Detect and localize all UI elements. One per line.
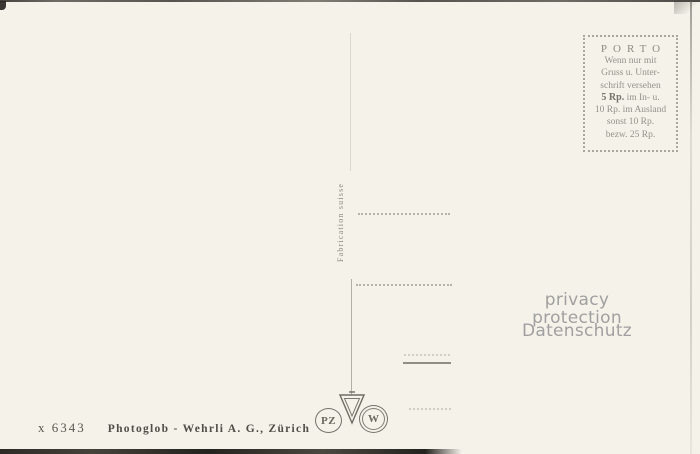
scan-corner-shade	[674, 0, 700, 14]
scan-edge-bottom	[0, 449, 462, 454]
porto-text-line: schrift versehen	[585, 80, 676, 92]
privacy-watermark-de: Datenschutz	[497, 323, 657, 339]
w-logo-letter: W	[368, 413, 379, 425]
porto-title: PORTO	[585, 43, 676, 55]
address-dotted-line	[356, 284, 452, 286]
porto-rate-rest: im In- u.	[624, 93, 659, 103]
porto-text-line: 10 Rp. im Ausland	[585, 104, 676, 116]
photoglob-pz-logo: PZ	[315, 408, 342, 433]
address-dotted-line-faint	[409, 408, 451, 410]
fabrication-suisse-label: Fabrication suisse	[336, 176, 354, 268]
divider-line-upper	[350, 33, 351, 171]
privacy-watermark: privacy protection Datenschutz	[497, 291, 657, 339]
scan-corner-mark	[0, 1, 6, 10]
wehrli-w-logo: W	[359, 405, 388, 433]
address-dotted-line-faint	[404, 354, 450, 356]
address-dotted-line	[358, 213, 450, 215]
pz-logo-letters: PZ	[321, 415, 336, 427]
postcard-back: PORTO Wenn nur mit Gruss u. Unter- schri…	[0, 0, 700, 454]
postage-rate-box: PORTO Wenn nur mit Gruss u. Unter- schri…	[583, 35, 678, 152]
porto-rate-bold: 5 Rp.	[601, 92, 624, 103]
porto-rate-line: 5 Rp. im In- u.	[585, 92, 676, 104]
scan-edge-top	[0, 0, 700, 2]
publisher-name: Photoglob - Wehrli A. G., Zürich	[108, 423, 310, 435]
scan-edge-right-crease	[690, 0, 692, 454]
porto-text-line: Wenn nur mit	[585, 55, 676, 67]
porto-text-line: bezw. 25 Rp.	[585, 129, 676, 141]
porto-text-line: Gruss u. Unter-	[585, 67, 676, 79]
porto-text-line: sonst 10 Rp.	[585, 116, 676, 128]
divider-line-lower	[351, 279, 352, 395]
w-logo-inner-ring: W	[362, 408, 385, 430]
address-solid-line	[403, 362, 451, 364]
publisher-imprint: x 6343 Photoglob - Wehrli A. G., Zürich	[38, 420, 310, 436]
card-number: x 6343	[38, 420, 86, 436]
